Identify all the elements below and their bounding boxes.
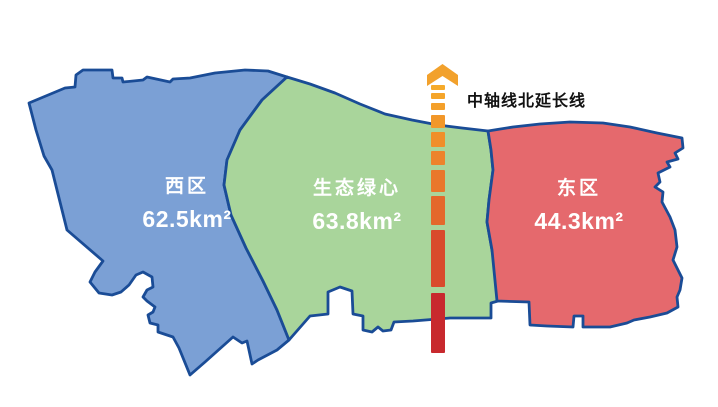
axis-dash	[431, 115, 445, 128]
axis-dash	[431, 151, 445, 165]
region-west-name: 西区	[165, 177, 209, 197]
region-east-area: 44.3km²	[534, 209, 623, 233]
region-green-heart-area: 63.8km²	[312, 209, 401, 233]
axis-dash	[431, 103, 445, 110]
region-label-west: 西区 62.5km²	[142, 177, 231, 231]
district-map-canvas: 中轴线北延长线 西区 62.5km² 生态绿心 63.8km² 东区 44.3k…	[0, 0, 718, 407]
region-label-green-heart: 生态绿心 63.8km²	[312, 179, 401, 233]
axis-dash	[431, 196, 445, 225]
region-east-name: 东区	[557, 179, 601, 199]
region-west-area: 62.5km²	[142, 207, 231, 231]
axis-dash	[431, 132, 445, 147]
region-label-east: 东区 44.3km²	[534, 179, 623, 233]
axis-label: 中轴线北延长线	[467, 87, 586, 111]
axis-dash	[431, 230, 445, 287]
axis-dash-line	[431, 85, 445, 353]
axis-dash	[431, 85, 445, 90]
region-green-heart-name: 生态绿心	[313, 179, 401, 199]
axis-dash	[431, 170, 445, 192]
axis-arrow-up-icon	[427, 64, 458, 86]
axis-dash	[431, 93, 445, 99]
axis-dash	[431, 293, 445, 353]
